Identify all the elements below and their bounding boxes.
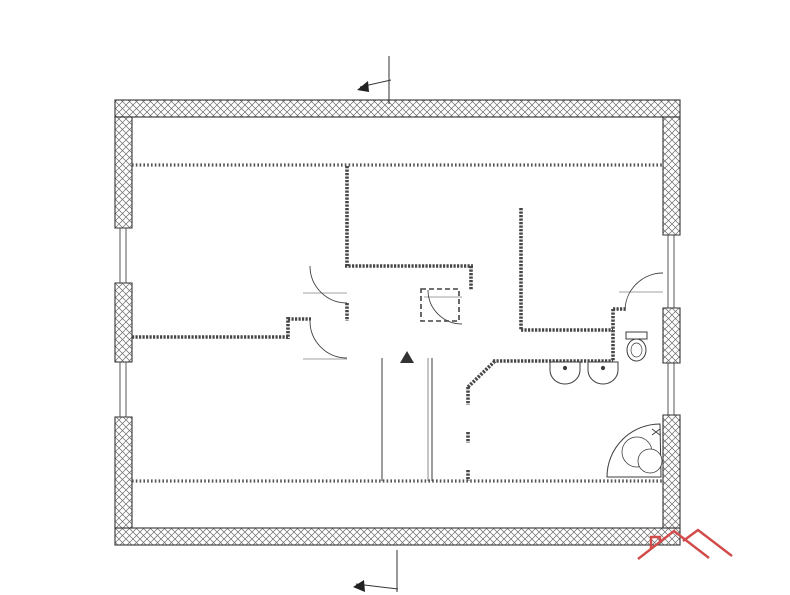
fixtures	[550, 332, 662, 477]
floor-plan-page	[0, 0, 790, 595]
doors	[303, 266, 663, 359]
door-room2	[303, 321, 347, 359]
wall-bottom	[115, 528, 680, 545]
windows	[115, 228, 680, 417]
toilet	[626, 332, 647, 361]
washbasin	[588, 362, 618, 384]
knee-walls	[132, 165, 663, 481]
wall-left-c	[115, 417, 132, 528]
wall-top	[115, 100, 680, 117]
corner-bathtub	[607, 424, 662, 477]
wall-left-a	[115, 117, 132, 228]
window-left-1	[115, 228, 132, 283]
interior-walls	[132, 166, 626, 481]
wall-right-a	[663, 117, 680, 235]
stairs-up-arrow	[400, 351, 414, 363]
wall-bath-diagonal	[468, 361, 495, 387]
wall-right-b	[663, 308, 680, 363]
washbasin	[550, 362, 580, 384]
wall-left-b	[115, 283, 132, 362]
section-marker-bottom	[353, 550, 398, 592]
staircase	[382, 351, 432, 481]
window-left-2	[115, 362, 132, 417]
door-room1	[303, 266, 347, 303]
outer-walls	[115, 100, 680, 545]
door-closet	[424, 290, 462, 324]
floor-plan-drawing	[0, 0, 790, 595]
door-wc	[619, 273, 663, 311]
section-markers	[353, 56, 398, 592]
window-right-2	[663, 363, 680, 415]
window-right-1	[663, 235, 680, 308]
wall-right-c	[663, 415, 680, 528]
section-marker-top	[357, 56, 391, 104]
